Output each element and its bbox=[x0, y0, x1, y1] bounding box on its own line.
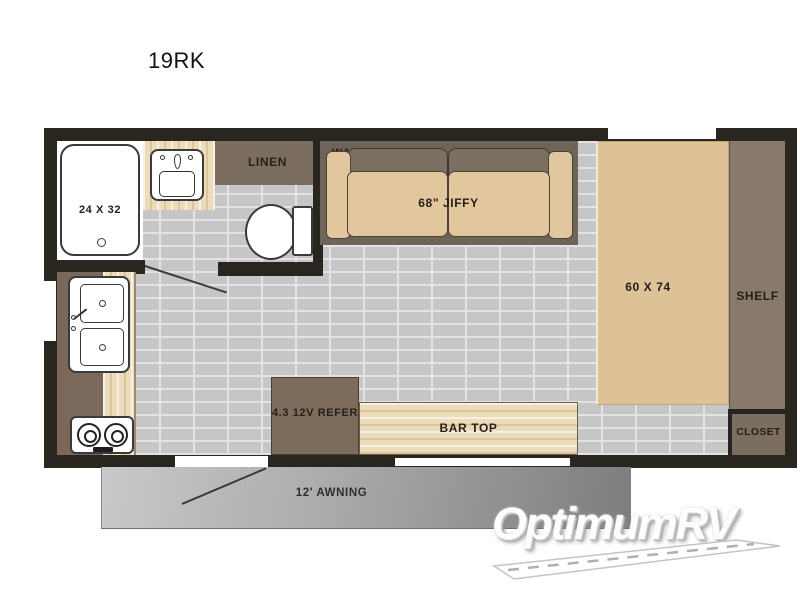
faucet-knob-icon bbox=[160, 155, 165, 160]
faucet-spout-icon bbox=[174, 154, 181, 169]
faucet-knob-icon bbox=[71, 326, 76, 331]
watermark: OptimumRV bbox=[488, 496, 800, 586]
sink-basin bbox=[80, 328, 124, 366]
shower-pan: 24 X 32 bbox=[60, 144, 140, 256]
stove bbox=[70, 416, 134, 454]
linen-label: LINEN bbox=[215, 155, 320, 169]
floorplan-page: 19RK 24 X 32 LINEN bbox=[0, 0, 800, 600]
faucet-knob-icon bbox=[188, 155, 193, 160]
floorplan-model-title: 19RK bbox=[148, 48, 205, 74]
refrigerator: 4.3 12V REFER bbox=[271, 377, 359, 455]
closet: CLOSET bbox=[728, 409, 785, 455]
linen-cabinet: LINEN bbox=[215, 141, 320, 185]
bar-window bbox=[395, 458, 570, 466]
bedroom-window bbox=[608, 128, 716, 139]
bed: 60 X 74 bbox=[596, 141, 729, 405]
sofa-label: 68" JIFFY bbox=[347, 196, 550, 210]
sofa-platform: WALL AC 68" JIFFY bbox=[320, 141, 578, 245]
shower-size-label: 24 X 32 bbox=[62, 204, 138, 216]
sofa-armrest bbox=[548, 151, 573, 239]
trailer-outline: 24 X 32 LINEN WALL AC bbox=[44, 128, 797, 468]
shower-area: 24 X 32 bbox=[57, 141, 143, 260]
sink-basin bbox=[159, 171, 195, 197]
kitchen-sink bbox=[68, 276, 130, 373]
toilet-tank bbox=[292, 206, 313, 256]
stove-handle bbox=[93, 447, 113, 452]
bar-top-label: BAR TOP bbox=[360, 421, 577, 435]
shelf-label: SHELF bbox=[730, 289, 785, 303]
closet-label: CLOSET bbox=[732, 426, 785, 438]
bathroom-sink bbox=[150, 149, 204, 201]
sink-drain-icon bbox=[99, 344, 106, 351]
toilet-bowl bbox=[245, 204, 297, 260]
bed-size-label: 60 X 74 bbox=[598, 280, 698, 294]
kitchen-window bbox=[44, 281, 56, 341]
sink-drain-icon bbox=[99, 300, 106, 307]
refrigerator-label: 4.3 12V REFER bbox=[272, 407, 358, 419]
bar-top: BAR TOP bbox=[359, 402, 578, 455]
shower-drain-icon bbox=[97, 238, 106, 247]
bathroom-wall-horizontal bbox=[218, 262, 323, 276]
stove-burner-icon bbox=[77, 423, 101, 447]
shelf: SHELF bbox=[729, 141, 785, 409]
watermark-road-icon bbox=[488, 534, 788, 584]
stove-burner-icon bbox=[104, 423, 128, 447]
sink-basin bbox=[80, 284, 124, 323]
